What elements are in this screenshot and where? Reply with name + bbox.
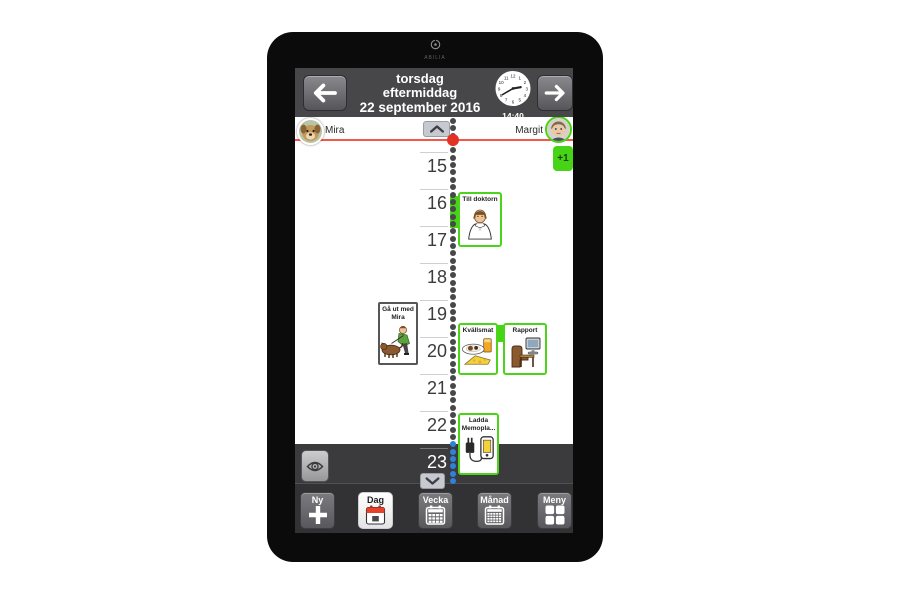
- current-time-dot: [447, 134, 459, 146]
- activity-card-kvallsmat[interactable]: Kvällsmat: [458, 323, 498, 375]
- date-title: torsdag eftermiddag 22 september 2016: [347, 72, 493, 115]
- timeline-dot: [450, 258, 456, 264]
- timeline-dot: [450, 287, 456, 293]
- timeline-dot: [450, 228, 456, 234]
- plus-icon: [307, 505, 329, 525]
- collapse-timeline-down-button[interactable]: [420, 473, 445, 489]
- hour-line: [420, 411, 448, 412]
- day-view-button[interactable]: Dag: [358, 492, 393, 529]
- chevron-up-icon: [428, 124, 446, 134]
- hour-label: 22: [407, 413, 447, 437]
- hour-line: [420, 152, 448, 153]
- show-activity-button[interactable]: [301, 450, 329, 482]
- collapse-timeline-up-button[interactable]: [423, 121, 450, 137]
- timeline-dot: [450, 250, 456, 256]
- brand-text: ABILIA: [267, 55, 603, 61]
- timeline-dot: [450, 397, 456, 403]
- timeline-dot-night: [450, 471, 456, 477]
- dog-walk-icon: [380, 322, 416, 360]
- hour-label: 15: [407, 154, 447, 178]
- timeline-dot: [450, 118, 456, 124]
- month-calendar-icon: [484, 505, 505, 525]
- hour-label: 18: [407, 265, 447, 289]
- tablet-frame: ABILIA +1 Till doktorn: [267, 32, 603, 562]
- timeline-dot: [450, 339, 456, 345]
- week-calendar-icon: [425, 505, 446, 525]
- evening-meal-icon: [461, 336, 495, 368]
- new-activity-button[interactable]: Ny: [300, 492, 335, 529]
- timeline-dot: [450, 243, 456, 249]
- user-avatar-margit[interactable]: [545, 116, 572, 143]
- user-avatar-mira[interactable]: [297, 118, 324, 145]
- month-view-button[interactable]: Månad: [477, 492, 512, 529]
- menu-grid-icon: [545, 505, 565, 525]
- timeline-dot: [450, 265, 456, 271]
- activity-title: Kvällsmat: [463, 327, 494, 335]
- timeline-dot: [450, 434, 456, 440]
- svg-text:11: 11: [504, 75, 509, 80]
- day-part: eftermiddag: [347, 86, 493, 100]
- dog-photo: [299, 120, 322, 143]
- timeline-dot: [450, 184, 456, 190]
- activity-title: Ladda Memopla...: [460, 417, 497, 432]
- hour-line: [420, 189, 448, 190]
- timeline-dot: [450, 324, 456, 330]
- hour-label: 17: [407, 228, 447, 252]
- button-label: Dag: [359, 495, 392, 505]
- day-name: torsdag: [347, 72, 493, 86]
- hour-line: [420, 300, 448, 301]
- timeline-dot: [450, 346, 456, 352]
- hour-line: [420, 448, 448, 449]
- svg-text:12: 12: [511, 73, 516, 78]
- bottom-toolbar: Ny Dag Vecka: [295, 483, 573, 533]
- timeline-dot: [450, 162, 456, 168]
- brand-logo: ABILIA: [267, 37, 603, 61]
- timeline-dot: [450, 405, 456, 411]
- arrow-right-icon: [542, 81, 568, 105]
- timeline-dot: [450, 331, 456, 337]
- timeline-dot: [450, 309, 456, 315]
- activity-title: Gå ut med Mira: [380, 306, 416, 321]
- timeline-dot: [450, 427, 456, 433]
- woman-photo: [547, 118, 570, 141]
- timeline-dot: [450, 147, 456, 153]
- timeline-dot: [450, 353, 456, 359]
- analog-clock-icon: 1212 345 678 91011: [494, 70, 532, 107]
- app-screen: +1 Till doktorn Gå ut med Mira: [295, 68, 573, 533]
- user-name-mira: Mira: [325, 125, 344, 137]
- hour-line: [420, 374, 448, 375]
- next-day-button[interactable]: [537, 75, 573, 111]
- previous-day-button[interactable]: [303, 75, 347, 111]
- timeline-dot: [450, 419, 456, 425]
- hour-label: 23: [407, 450, 447, 474]
- timeline-dot: [450, 302, 456, 308]
- date-text: 22 september 2016: [347, 100, 493, 115]
- digital-time: 14:40: [493, 112, 533, 121]
- activity-title: Till doktorn: [462, 196, 497, 204]
- activity-card-ladda-memoplanner[interactable]: Ladda Memopla...: [458, 413, 499, 475]
- activity-card-till-doktorn[interactable]: Till doktorn: [458, 192, 502, 247]
- timeline-dot: [450, 294, 456, 300]
- timeline-dot: [450, 236, 456, 242]
- menu-button[interactable]: Meny: [537, 492, 572, 529]
- activity-card-ga-ut-med-mira[interactable]: Gå ut med Mira: [378, 302, 418, 365]
- timeline-dot: [450, 383, 456, 389]
- timeline-dot: [450, 221, 456, 227]
- timeline-dot: [450, 375, 456, 381]
- hour-line: [420, 226, 448, 227]
- timeline-dot: [450, 177, 456, 183]
- timeline-dot: [450, 361, 456, 367]
- timeline-dot-night: [450, 449, 456, 455]
- timeline-dot: [450, 192, 456, 198]
- user-name-margit: Margit: [495, 125, 543, 137]
- current-time-line: [295, 139, 573, 141]
- screenshot-stage: ABILIA +1 Till doktorn: [0, 0, 900, 600]
- timeline-dot: [450, 155, 456, 161]
- hour-line: [420, 337, 448, 338]
- chevron-down-icon: [424, 476, 441, 486]
- timeline-dot: [450, 368, 456, 374]
- timeline-dot: [450, 214, 456, 220]
- clock: 1212 345 678 91011 14:40: [493, 70, 533, 121]
- charger-icon: [462, 433, 496, 469]
- arrow-left-icon: [310, 81, 340, 105]
- week-view-button[interactable]: Vecka: [418, 492, 453, 529]
- timeline-dot: [450, 169, 456, 175]
- timeline-dot: [450, 125, 456, 131]
- header-bar: torsdag eftermiddag 22 september 2016 12…: [295, 68, 573, 117]
- activity-title: Rapport: [513, 327, 538, 335]
- button-label: Meny: [538, 495, 571, 505]
- computer-desk-icon: [507, 336, 543, 368]
- button-label: Ny: [301, 495, 334, 505]
- more-activities-badge[interactable]: +1: [553, 146, 573, 171]
- button-label: Månad: [478, 495, 511, 505]
- timeline-dot: [450, 390, 456, 396]
- timeline-dot: [450, 199, 456, 205]
- hour-line: [420, 263, 448, 264]
- hour-label: 16: [407, 191, 447, 215]
- timeline-dot: [450, 316, 456, 322]
- doctor-icon: [463, 205, 497, 241]
- hour-label: 21: [407, 376, 447, 400]
- button-label: Vecka: [419, 495, 452, 505]
- timeline-dot: [450, 272, 456, 278]
- eye-icon: [306, 460, 324, 473]
- brand-logo-icon: [430, 39, 441, 50]
- timeline-dot: [450, 412, 456, 418]
- svg-text:10: 10: [499, 80, 504, 85]
- timeline-dot: [450, 280, 456, 286]
- activity-card-rapport[interactable]: Rapport: [503, 323, 547, 375]
- day-calendar-icon: [365, 505, 386, 525]
